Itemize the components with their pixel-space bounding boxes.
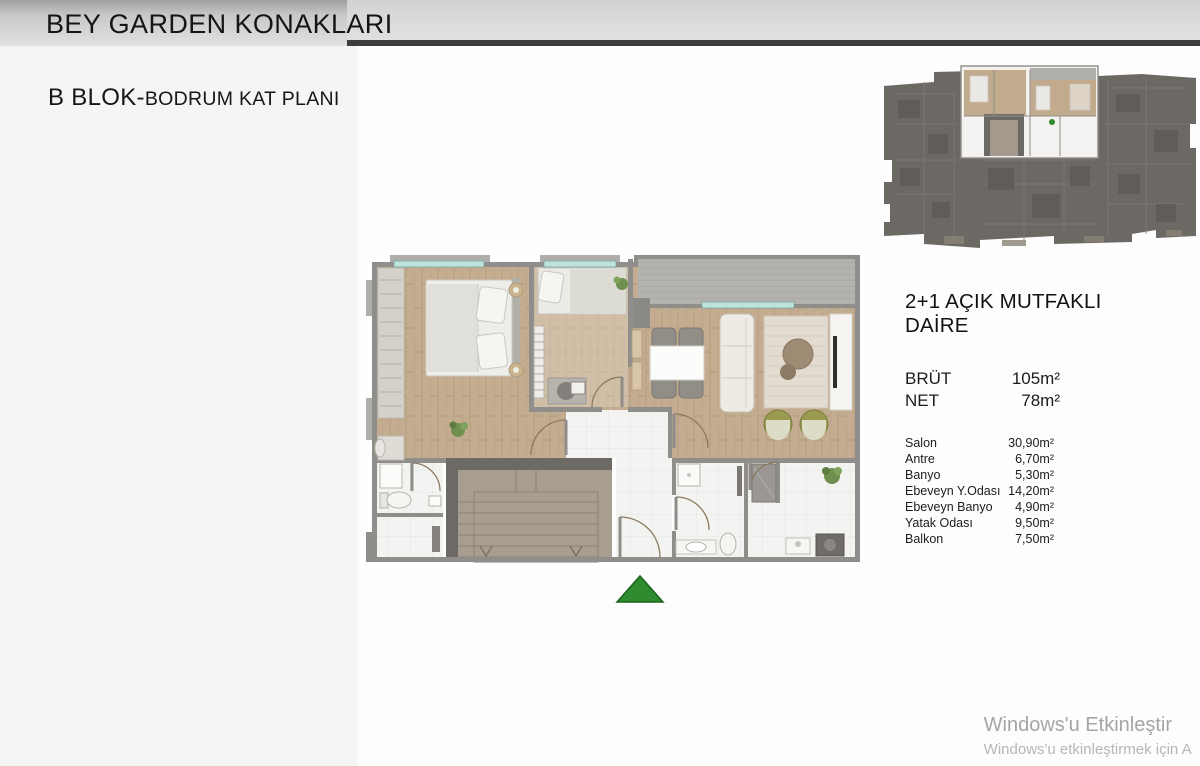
watermark-line1: Windows'u Etkinleştir bbox=[984, 714, 1172, 737]
radiator bbox=[632, 362, 642, 390]
area-row: NET 78m² bbox=[905, 390, 1060, 412]
room-label: Banyo bbox=[905, 467, 940, 483]
room-value: 14,20m² bbox=[1008, 483, 1054, 499]
laptop bbox=[571, 382, 585, 394]
room-value: 6,70m² bbox=[1015, 451, 1054, 467]
dining-table bbox=[650, 346, 704, 380]
apartment-type-title: 2+1 AÇIK MUTFAKLI DAİRE bbox=[905, 290, 1160, 338]
area-row: BRÜT 105m² bbox=[905, 368, 1060, 390]
shaft bbox=[633, 298, 650, 328]
room-label: Ebeveyn Y.Odası bbox=[905, 483, 1000, 499]
radiator bbox=[432, 526, 440, 552]
room-value: 30,90m² bbox=[1008, 435, 1054, 451]
room-row: Ebeveyn Y.Odası 14,20m² bbox=[905, 483, 1054, 499]
pillow bbox=[538, 270, 564, 303]
living-room-window bbox=[702, 302, 794, 308]
towel-radiator bbox=[737, 466, 742, 496]
area-label: NET bbox=[905, 390, 939, 412]
shower-tray bbox=[380, 464, 402, 488]
toilet bbox=[387, 492, 411, 508]
area-value: 105m² bbox=[1012, 368, 1060, 390]
header-rule bbox=[347, 40, 1200, 46]
floor-label: BODRUM KAT PLANI bbox=[145, 88, 340, 110]
pillow bbox=[476, 332, 508, 369]
floor-plan-svg bbox=[366, 250, 866, 606]
pillow bbox=[476, 286, 508, 324]
watermark-line2: Windows'u etkinleştirmek için A bbox=[984, 741, 1200, 758]
room-row: Balkon 7,50m² bbox=[905, 531, 1054, 547]
slide: BEY GARDEN KONAKLARI B BLOK-BODRUM KAT P… bbox=[0, 0, 1200, 766]
project-title: BEY GARDEN KONAKLARI bbox=[46, 9, 393, 40]
room-value: 4,90m² bbox=[1015, 499, 1054, 515]
balcony bbox=[638, 259, 855, 308]
room-label: Balkon bbox=[905, 531, 943, 547]
room-label: Salon bbox=[905, 435, 937, 451]
room-row: Ebeveyn Banyo 4,90m² bbox=[905, 499, 1054, 515]
room-row: Salon 30,90m² bbox=[905, 435, 1054, 451]
room-row: Antre 6,70m² bbox=[905, 451, 1054, 467]
side-table bbox=[780, 364, 796, 380]
room-label: Ebeveyn Banyo bbox=[905, 499, 993, 515]
room-list: Salon 30,90m² Antre 6,70m² Banyo 5,30m² … bbox=[905, 435, 1054, 547]
shelf-radiator bbox=[534, 326, 544, 398]
windows-activation-watermark: Windows'u Etkinleştir Windows'u etkinleş… bbox=[984, 714, 1200, 758]
sofa bbox=[720, 314, 754, 412]
room-row: Yatak Odası 9,50m² bbox=[905, 515, 1054, 531]
sink bbox=[686, 542, 706, 552]
apartment-info: 2+1 AÇIK MUTFAKLI DAİRE BRÜT 105m² NET 7… bbox=[905, 290, 1160, 547]
toilet bbox=[720, 533, 736, 555]
room-value: 9,50m² bbox=[1015, 515, 1054, 531]
radiator bbox=[632, 330, 642, 358]
room-value: 7,50m² bbox=[1015, 531, 1054, 547]
floor-plan bbox=[366, 250, 866, 606]
room-label: Yatak Odası bbox=[905, 515, 973, 531]
sink bbox=[429, 496, 441, 506]
building-overview-svg bbox=[884, 64, 1196, 250]
highlighted-unit bbox=[961, 66, 1098, 158]
room-label: Antre bbox=[905, 451, 935, 467]
staircase bbox=[446, 458, 612, 562]
wardrobe bbox=[378, 268, 404, 418]
room-row: Banyo 5,30m² bbox=[905, 467, 1054, 483]
bedroom-window bbox=[544, 261, 616, 267]
plan-subtitle: B BLOK-BODRUM KAT PLANI bbox=[48, 84, 340, 112]
tv bbox=[833, 336, 837, 388]
master-bedroom-window bbox=[394, 261, 484, 267]
mirror bbox=[375, 439, 385, 457]
area-value: 78m² bbox=[1021, 390, 1060, 412]
building-overview-plan bbox=[884, 64, 1196, 250]
project-title-box: BEY GARDEN KONAKLARI bbox=[0, 0, 347, 48]
area-label: BRÜT bbox=[905, 368, 951, 390]
left-panel bbox=[0, 46, 357, 766]
area-summary: BRÜT 105m² NET 78m² bbox=[905, 368, 1060, 412]
block-label: B BLOK- bbox=[48, 84, 145, 111]
room-value: 5,30m² bbox=[1015, 467, 1054, 483]
north-arrow-icon bbox=[617, 576, 663, 602]
